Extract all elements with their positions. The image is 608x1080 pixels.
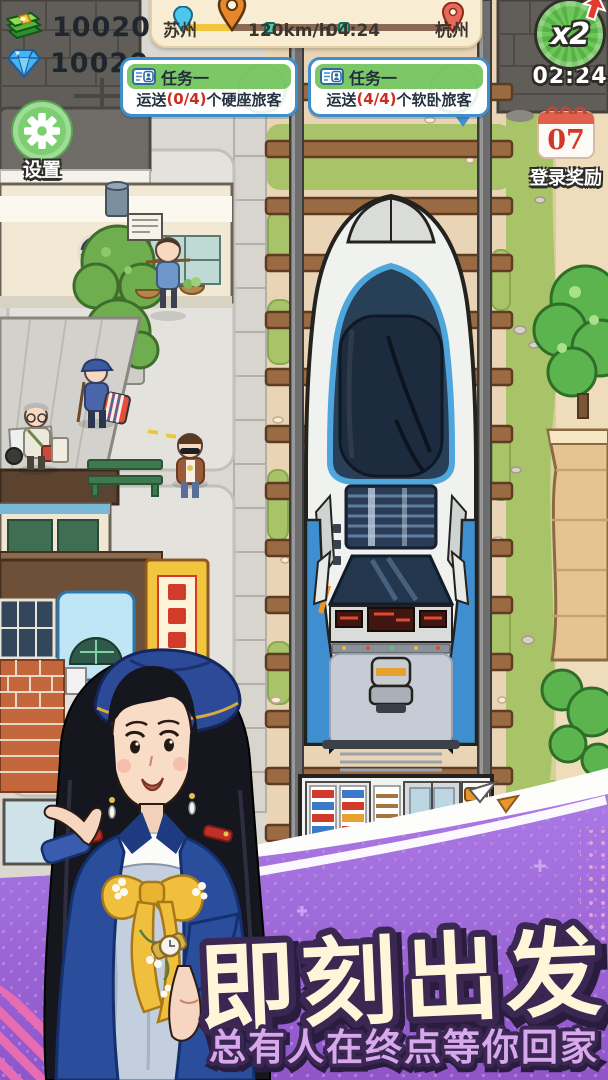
train: [300, 196, 492, 886]
login-reward-label: 登录奖励: [524, 164, 608, 190]
route-speed-label: 120km/h: [248, 21, 328, 41]
login-reward-day: 07: [547, 125, 585, 156]
task-2-prefix: 运送: [326, 89, 356, 110]
task-1-text: 运送 (0/4) 个硬座旅客: [123, 88, 295, 110]
game-screen: { "hud": { "currencies": [ { "icon": "ca…: [0, 0, 608, 1080]
trash-bin: [106, 182, 128, 216]
task-2-text: 运送 (4/4) 个软卧旅客: [311, 88, 487, 110]
task-2-title: 任务一: [349, 65, 397, 89]
settings-circle[interactable]: [11, 100, 73, 162]
route-time-label: 04:24: [326, 21, 378, 41]
task-1-progress: (0/4): [166, 90, 206, 108]
speed-boost-badge[interactable]: x2 02:24: [532, 0, 608, 89]
cash-counter: 10020: [6, 10, 151, 44]
task-2-header: 任务一: [315, 64, 483, 89]
route-origin-label: 苏州: [154, 16, 206, 41]
task-2-suffix: 个软卧旅客: [397, 89, 472, 110]
settings-label: 设置: [8, 155, 76, 182]
calendar-icon[interactable]: 07: [537, 102, 595, 162]
login-reward-button[interactable]: 07 登录奖励: [524, 102, 608, 190]
task-card-icon: [320, 68, 344, 85]
gear-icon: [23, 112, 61, 150]
cash-value: 10020: [52, 12, 151, 43]
task-banner-1[interactable]: 任务一 运送 (0/4) 个硬座旅客: [120, 57, 298, 117]
task-banner-2[interactable]: 任务一 运送 (4/4) 个软卧旅客: [308, 57, 490, 117]
cash-icon: [6, 10, 44, 44]
promo-subline: 总有人在终点等你回家: [209, 1026, 599, 1069]
task-1-suffix: 个硬座旅客: [207, 89, 282, 110]
diamond-icon: [6, 47, 42, 79]
task-card-icon: [132, 68, 156, 85]
driver-seat: [370, 658, 412, 713]
boost-circle[interactable]: x2: [534, 0, 606, 70]
scene-art: 即刻出发 即刻出发 总有人在终点等你回家 总有人在终点等你回家: [0, 0, 608, 1080]
task-1-header: 任务一: [127, 64, 291, 89]
task-1-prefix: 运送: [136, 89, 166, 110]
route-destination-label: 杭州: [426, 16, 478, 41]
train-position-pin-icon: [216, 0, 248, 32]
cliff: [548, 430, 608, 660]
settings-button[interactable]: 设置: [8, 100, 76, 182]
promo-slogans: 即刻出发 即刻出发 总有人在终点等你回家 总有人在终点等你回家: [197, 916, 608, 1073]
task-2-progress: (4/4): [356, 90, 396, 108]
boost-up-arrow-icon: [581, 0, 607, 23]
route-status-card: 苏州 120km/h 04:24 杭州: [150, 0, 482, 48]
task-1-title: 任务一: [161, 65, 209, 89]
